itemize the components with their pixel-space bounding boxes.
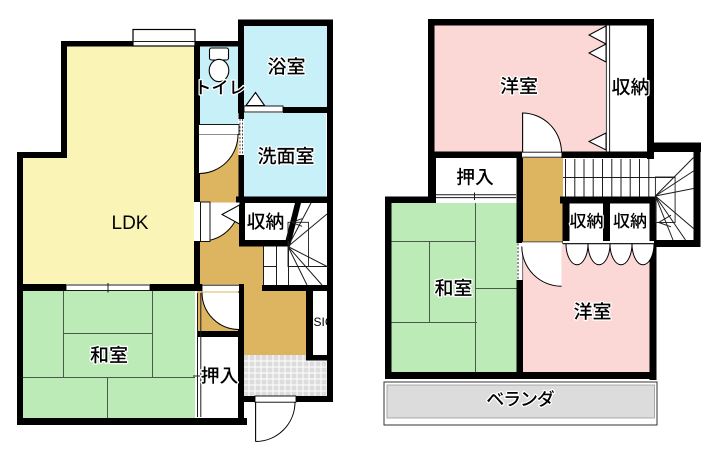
svg-text:SIC: SIC	[313, 315, 333, 329]
svg-text:LDK: LDK	[112, 213, 149, 234]
